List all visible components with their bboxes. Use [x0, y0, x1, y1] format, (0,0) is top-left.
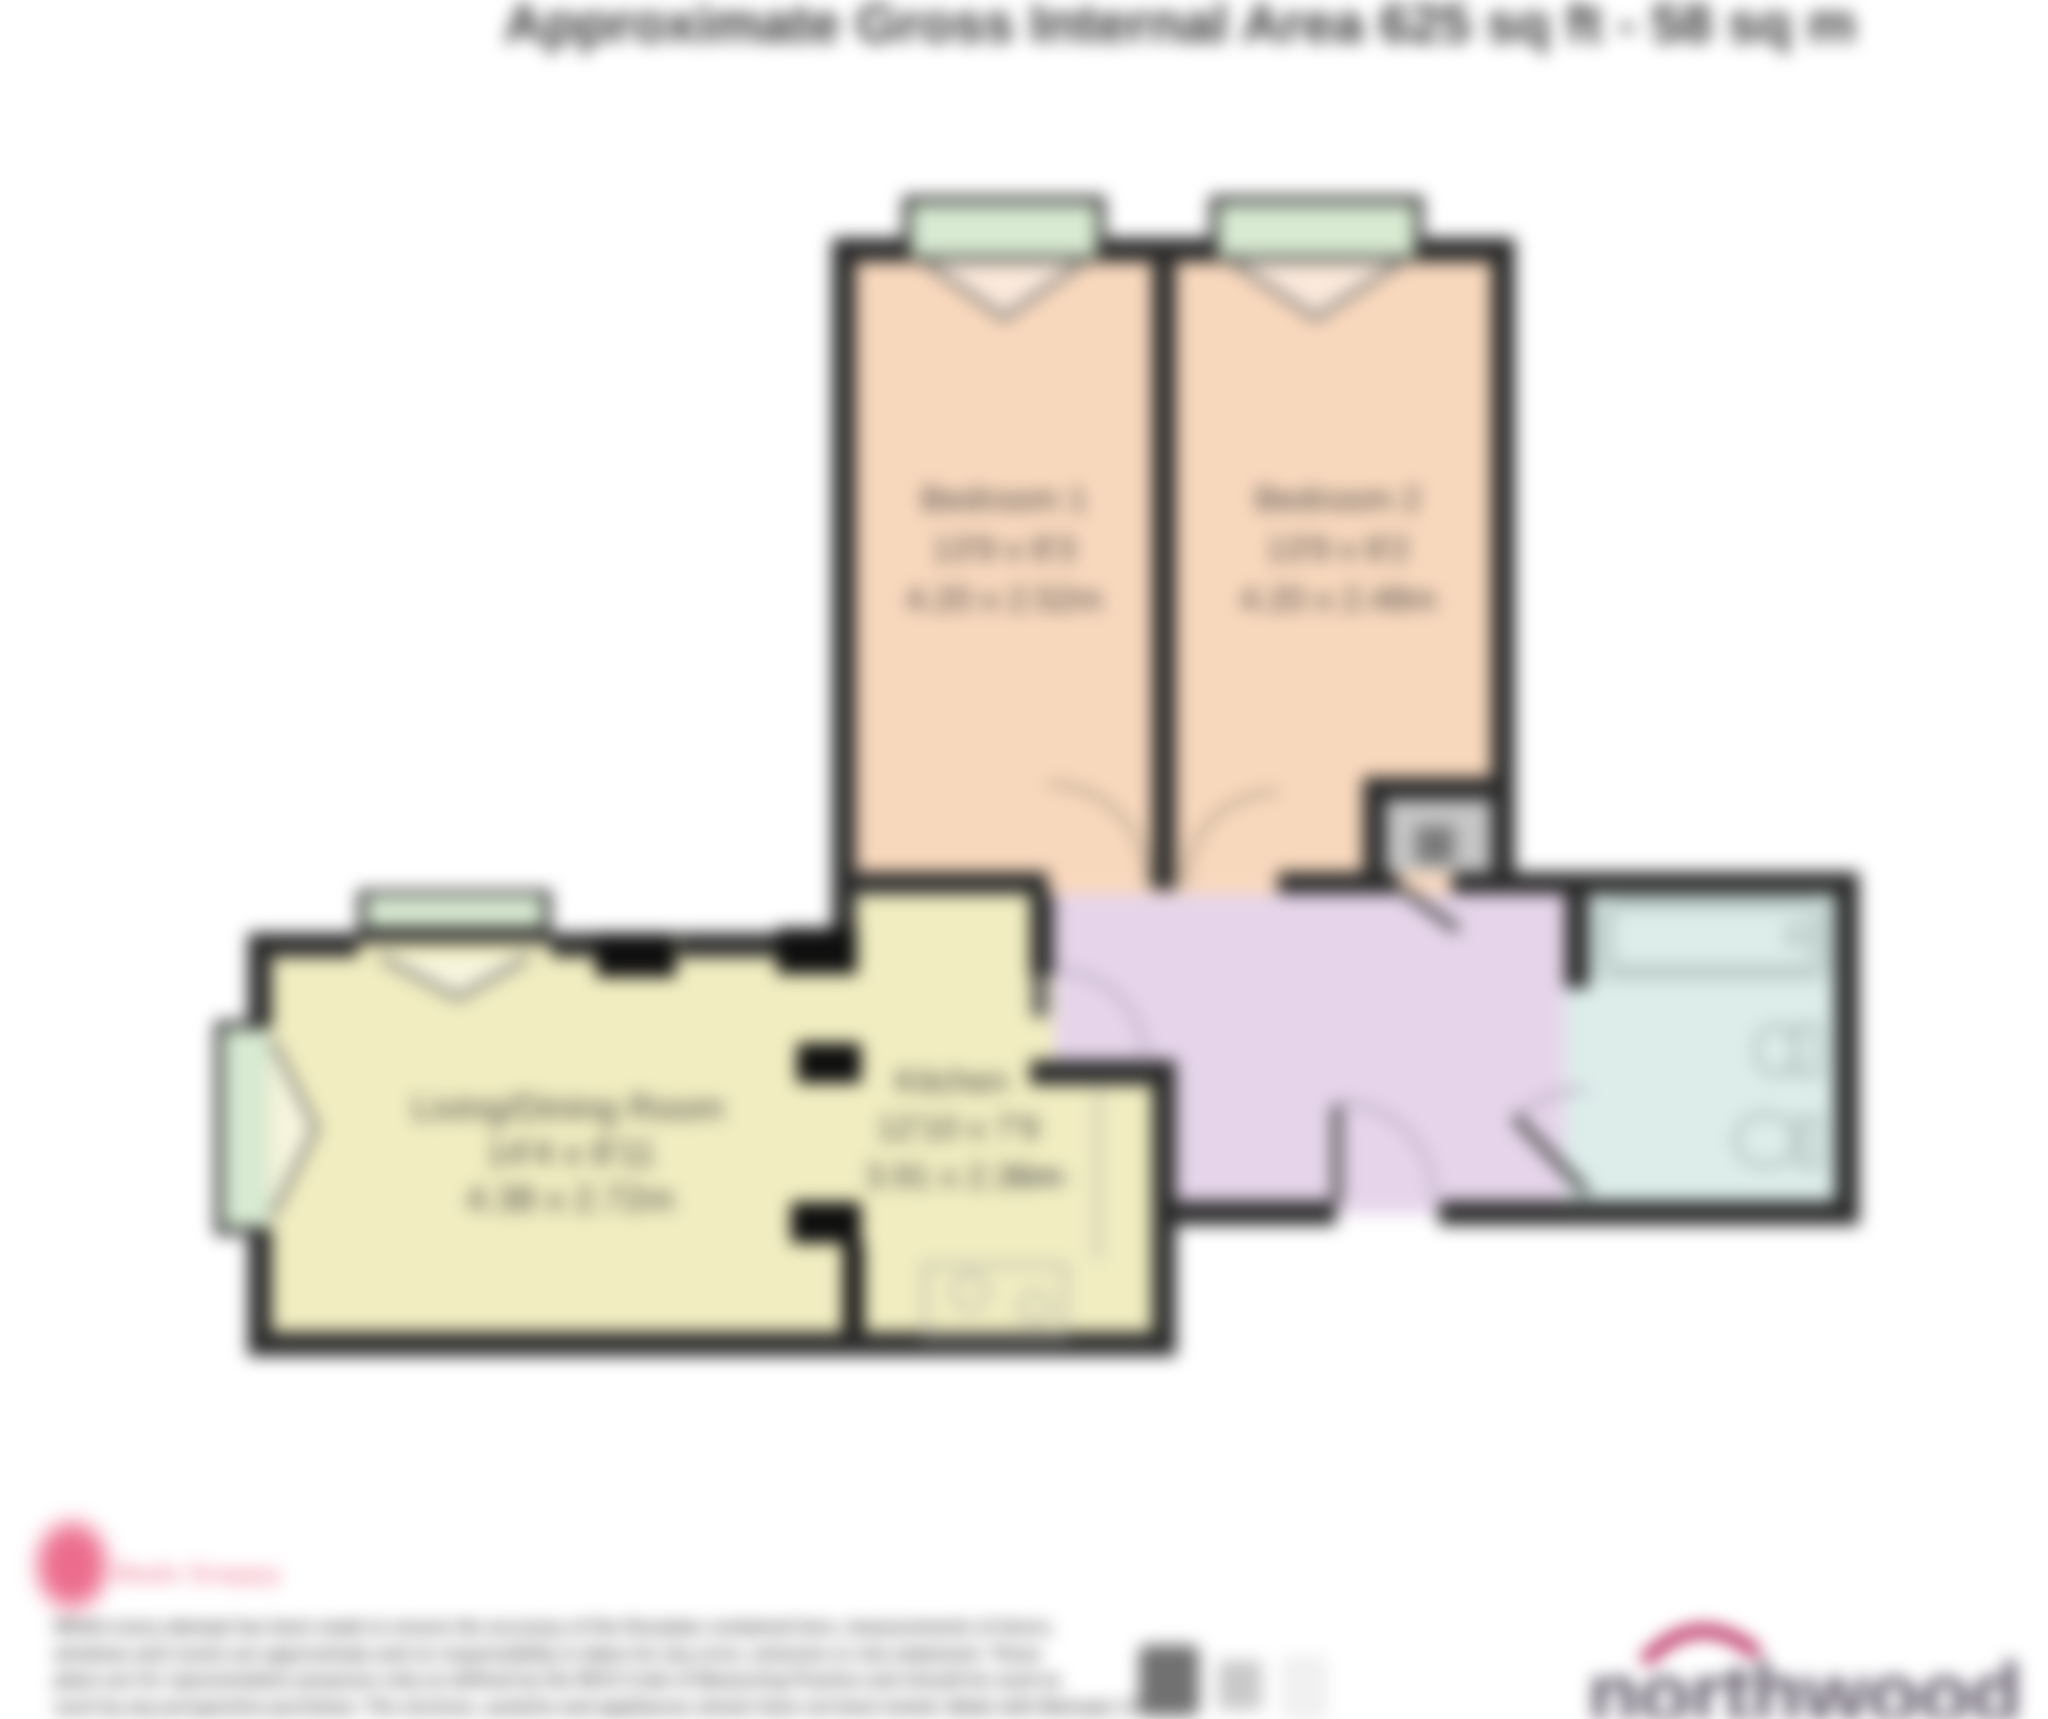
- svg-text:northwood: northwood: [1588, 1646, 2022, 1719]
